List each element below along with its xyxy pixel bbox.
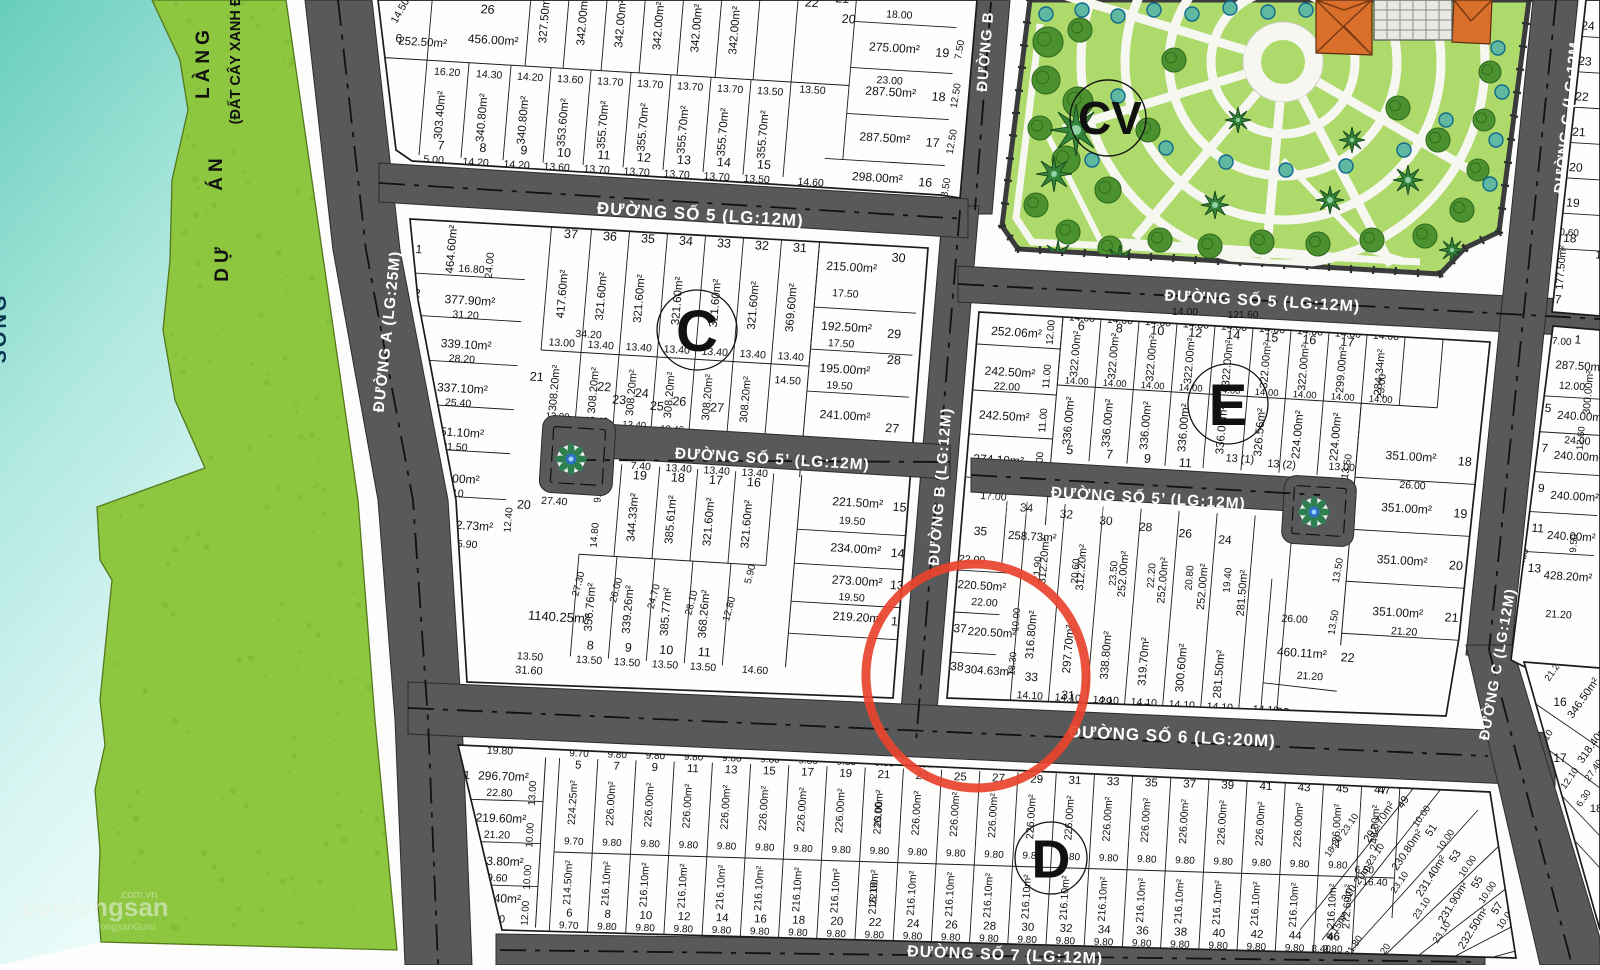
svg-text:33: 33	[1024, 670, 1039, 685]
svg-text:42: 42	[1250, 929, 1264, 941]
svg-text:9.80: 9.80	[864, 930, 885, 942]
svg-text:19.50: 19.50	[826, 379, 853, 393]
svg-text:9.80: 9.80	[1328, 860, 1349, 872]
svg-text:38: 38	[950, 659, 965, 674]
svg-text:by Prop: by Prop	[1049, 523, 1095, 540]
svg-text:28.20: 28.20	[448, 353, 475, 367]
svg-text:9.80: 9.80	[716, 841, 737, 853]
svg-text:14: 14	[890, 546, 905, 561]
svg-text:28: 28	[886, 353, 901, 368]
svg-text:44: 44	[1288, 930, 1302, 942]
svg-text:43: 43	[1297, 782, 1311, 794]
svg-text:9.80: 9.80	[1213, 856, 1234, 868]
svg-text:13: 13	[1527, 561, 1542, 576]
svg-text:31.20: 31.20	[452, 309, 479, 323]
svg-text:19.40: 19.40	[1222, 567, 1235, 593]
svg-text:batdongsanGuru: batdongsanGuru	[81, 922, 156, 933]
svg-text:26.00: 26.00	[1399, 479, 1426, 493]
svg-text:12.40: 12.40	[502, 507, 515, 533]
svg-text:10: 10	[639, 910, 653, 922]
svg-text:30: 30	[891, 250, 906, 265]
svg-text:35: 35	[973, 524, 988, 539]
svg-text:14.00: 14.00	[1330, 391, 1355, 403]
svg-text:9.80: 9.80	[635, 923, 656, 935]
svg-text:14.30: 14.30	[475, 68, 502, 82]
svg-text:16.20: 16.20	[433, 66, 460, 80]
svg-text:9.80: 9.80	[755, 842, 776, 854]
svg-text:7.40: 7.40	[630, 460, 652, 473]
svg-text:C: C	[676, 299, 718, 364]
svg-text:31.60: 31.60	[515, 664, 544, 678]
svg-text:D: D	[1032, 829, 1071, 889]
svg-text:10.00: 10.00	[522, 864, 535, 890]
svg-text:29: 29	[887, 327, 902, 342]
svg-text:8: 8	[586, 638, 594, 652]
svg-text:21: 21	[529, 369, 544, 384]
svg-text:9.80: 9.80	[711, 925, 732, 937]
svg-text:22.00: 22.00	[971, 596, 998, 610]
svg-text:9.80: 9.80	[869, 846, 890, 858]
svg-text:17.50: 17.50	[832, 287, 859, 301]
svg-text:9.80: 9.80	[678, 840, 699, 852]
svg-text:9.80: 9.80	[788, 927, 809, 939]
svg-text:21: 21	[1444, 610, 1459, 625]
svg-text:22: 22	[597, 380, 612, 395]
svg-text:13 (1): 13 (1)	[1225, 452, 1255, 466]
svg-text:11: 11	[1531, 521, 1545, 536]
svg-text:13.50: 13.50	[651, 658, 678, 672]
svg-text:30: 30	[1021, 922, 1035, 934]
svg-text:13.60: 13.60	[556, 73, 583, 87]
svg-text:25: 25	[649, 399, 664, 414]
svg-text:16: 16	[1553, 695, 1567, 709]
svg-text:9.80: 9.80	[750, 926, 771, 938]
svg-text:22: 22	[804, 0, 819, 10]
svg-text:27.40: 27.40	[541, 495, 568, 509]
svg-text:34: 34	[1097, 924, 1111, 936]
svg-text:13.40: 13.40	[777, 350, 804, 364]
svg-text:15: 15	[756, 157, 771, 172]
svg-text:18: 18	[1590, 803, 1600, 815]
svg-text:22: 22	[1340, 650, 1355, 665]
svg-text:13.50: 13.50	[756, 85, 783, 99]
svg-text:9.80: 9.80	[1137, 854, 1158, 866]
svg-text:9.80: 9.80	[826, 929, 847, 941]
svg-text:24: 24	[634, 386, 649, 401]
svg-text:121.60: 121.60	[1228, 310, 1259, 321]
svg-text:40: 40	[1212, 928, 1226, 940]
svg-text:13.70: 13.70	[596, 75, 623, 89]
svg-text:9.80: 9.80	[597, 921, 618, 933]
svg-text:18: 18	[1457, 454, 1472, 469]
svg-text:7: 7	[613, 761, 620, 773]
svg-text:13.70: 13.70	[636, 78, 663, 92]
svg-text:20: 20	[516, 497, 531, 512]
svg-text:E: E	[1209, 373, 1248, 438]
svg-text:5: 5	[1066, 443, 1074, 457]
svg-text:28: 28	[1138, 520, 1153, 535]
svg-text:9.80: 9.80	[941, 932, 962, 944]
svg-text:14.50: 14.50	[774, 374, 801, 388]
svg-text:38: 38	[1174, 926, 1188, 938]
svg-text:14.00: 14.00	[1140, 380, 1165, 392]
svg-text:39: 39	[1221, 780, 1235, 792]
svg-text:11.00: 11.00	[1041, 363, 1054, 388]
svg-text:13.50: 13.50	[689, 661, 716, 675]
svg-text:26: 26	[1178, 526, 1193, 541]
svg-text:20.80: 20.80	[1184, 565, 1197, 591]
svg-text:13.50: 13.50	[516, 650, 543, 664]
svg-text:10.00: 10.00	[524, 822, 537, 848]
svg-text:21: 21	[835, 0, 850, 6]
svg-text:15: 15	[892, 500, 907, 515]
svg-text:16.80: 16.80	[458, 263, 485, 277]
svg-text:14.00: 14.00	[1064, 375, 1089, 387]
svg-text:13.50: 13.50	[575, 654, 602, 668]
svg-text:21: 21	[877, 769, 891, 781]
svg-text:5: 5	[575, 760, 582, 772]
svg-text:13.00: 13.00	[527, 780, 540, 806]
svg-text:9.80: 9.80	[1098, 853, 1119, 865]
svg-text:9.80: 9.80	[1251, 858, 1272, 870]
svg-text:DỰ: DỰ	[212, 242, 233, 281]
svg-text:13.40: 13.40	[665, 462, 692, 476]
svg-text:21.20: 21.20	[483, 829, 510, 842]
svg-text:36: 36	[1136, 925, 1150, 937]
svg-text:14.00: 14.00	[1102, 378, 1127, 390]
svg-text:11.00: 11.00	[1037, 407, 1050, 432]
svg-text:9.80: 9.80	[979, 933, 1000, 945]
svg-text:19: 19	[935, 45, 950, 60]
svg-text:18: 18	[931, 89, 946, 104]
svg-text:9.50: 9.50	[1568, 534, 1581, 553]
svg-text:13.40: 13.40	[741, 467, 768, 481]
svg-text:24: 24	[906, 918, 920, 930]
svg-text:(ĐẤT CÂY XANH Đ: (ĐẤT CÂY XANH Đ	[226, 0, 244, 124]
svg-text:296.70m²: 296.70m²	[478, 769, 529, 785]
svg-text:13.50: 13.50	[613, 656, 640, 670]
svg-text:11: 11	[597, 148, 611, 163]
svg-text:32: 32	[1059, 923, 1073, 935]
svg-text:9: 9	[624, 641, 632, 655]
svg-text:9.80: 9.80	[673, 924, 694, 936]
svg-text:28: 28	[983, 920, 997, 932]
svg-text:20: 20	[1448, 558, 1463, 573]
svg-text:CV: CV	[1078, 92, 1142, 144]
svg-text:37: 37	[1183, 778, 1197, 790]
svg-text:19: 19	[1453, 506, 1468, 521]
svg-text:9.80: 9.80	[902, 931, 923, 943]
svg-text:33: 33	[1106, 776, 1120, 788]
svg-text:120: 120	[1595, 249, 1600, 262]
svg-text:9: 9	[651, 762, 658, 774]
svg-text:19: 19	[839, 768, 853, 780]
svg-text:17: 17	[1553, 751, 1567, 765]
svg-text:17: 17	[925, 135, 940, 150]
svg-text:23.00: 23.00	[1376, 373, 1389, 399]
svg-text:12.00: 12.00	[1558, 380, 1585, 394]
svg-text:27: 27	[885, 421, 900, 436]
svg-text:13.40: 13.40	[703, 464, 730, 478]
svg-text:9.80: 9.80	[1289, 859, 1310, 871]
svg-text:26: 26	[672, 394, 687, 409]
svg-text:13 (2): 13 (2)	[1267, 458, 1297, 472]
svg-text:13: 13	[676, 153, 691, 168]
svg-text:11: 11	[1178, 456, 1192, 471]
svg-text:12.60: 12.60	[1575, 426, 1588, 450]
svg-text:6: 6	[566, 908, 573, 920]
svg-text:10: 10	[556, 145, 571, 160]
svg-text:7.00: 7.00	[1551, 336, 1572, 348]
svg-text:16: 16	[918, 175, 933, 190]
svg-text:19: 19	[1566, 195, 1581, 210]
svg-text:460.11m²: 460.11m²	[1276, 644, 1327, 661]
svg-text:9.80: 9.80	[946, 848, 967, 860]
svg-text:9.70: 9.70	[559, 920, 580, 932]
svg-text:13.70: 13.70	[676, 80, 703, 94]
svg-text:13.00: 13.00	[548, 336, 575, 350]
svg-text:10: 10	[659, 643, 674, 658]
svg-text:11: 11	[697, 645, 711, 660]
svg-text:9.80: 9.80	[640, 839, 661, 851]
svg-text:27: 27	[710, 400, 725, 415]
svg-text:219.60m²: 219.60m²	[475, 811, 526, 827]
svg-text:22.00: 22.00	[868, 879, 881, 905]
svg-text:9.70: 9.70	[564, 836, 585, 848]
svg-text:14.20: 14.20	[516, 71, 543, 85]
svg-text:24: 24	[1218, 532, 1233, 547]
svg-text:22.00: 22.00	[993, 380, 1020, 394]
svg-text:9: 9	[1143, 452, 1151, 466]
svg-text:37: 37	[953, 621, 968, 636]
svg-text:41: 41	[1259, 781, 1273, 793]
svg-text:9.80: 9.80	[831, 845, 852, 857]
svg-text:9.80: 9.80	[793, 843, 814, 855]
svg-text:17: 17	[801, 767, 815, 779]
svg-text:8: 8	[604, 909, 611, 921]
svg-text:7: 7	[437, 138, 445, 152]
svg-text:22.80: 22.80	[486, 787, 513, 800]
svg-text:12: 12	[677, 911, 691, 923]
svg-text:13.40: 13.40	[739, 348, 766, 362]
svg-text:11: 11	[687, 763, 700, 775]
svg-text:16: 16	[754, 913, 768, 925]
svg-text:26: 26	[480, 2, 495, 17]
svg-text:20: 20	[830, 916, 844, 928]
svg-text:19.50: 19.50	[838, 515, 865, 529]
svg-text:31: 31	[1068, 775, 1082, 787]
svg-text:23.00: 23.00	[876, 74, 903, 88]
svg-text:14.00: 14.00	[1172, 306, 1198, 318]
svg-text:13.50: 13.50	[799, 84, 826, 98]
svg-text:13: 13	[724, 764, 738, 776]
svg-text:14: 14	[716, 155, 731, 170]
svg-text:25.40: 25.40	[444, 397, 471, 411]
svg-text:26.00: 26.00	[1281, 613, 1308, 627]
svg-text:13.40: 13.40	[625, 341, 652, 355]
svg-text:17.50: 17.50	[827, 337, 854, 351]
svg-text:23.00: 23.00	[873, 801, 886, 827]
svg-text:SÔNG: SÔNG	[0, 293, 11, 364]
svg-text:12: 12	[636, 150, 651, 165]
svg-text:13.70: 13.70	[716, 83, 743, 97]
svg-text:9: 9	[520, 143, 528, 157]
svg-text:14: 14	[715, 912, 729, 924]
svg-text:14.00: 14.00	[1292, 389, 1317, 401]
svg-text:21.20: 21.20	[1296, 670, 1323, 684]
svg-text:23: 23	[612, 393, 627, 408]
svg-text:18: 18	[792, 915, 806, 927]
svg-text:12.00: 12.00	[520, 900, 533, 926]
svg-text:14.80: 14.80	[589, 522, 602, 548]
svg-text:14.60: 14.60	[741, 664, 768, 678]
svg-text:LÀNG: LÀNG	[192, 25, 214, 99]
svg-text:9.80: 9.80	[907, 847, 928, 859]
svg-text:26: 26	[945, 919, 959, 931]
svg-text:19.50: 19.50	[838, 591, 865, 605]
svg-text:ÁN: ÁN	[205, 153, 227, 190]
svg-text:13.40: 13.40	[587, 339, 614, 353]
svg-text:18.00: 18.00	[886, 8, 913, 22]
svg-text:9.80: 9.80	[602, 837, 623, 849]
svg-text:.com.vn: .com.vn	[119, 889, 158, 901]
svg-text:35: 35	[1145, 777, 1159, 789]
svg-text:21.20: 21.20	[1390, 625, 1417, 639]
svg-text:31: 31	[792, 241, 807, 256]
svg-text:12.00: 12.00	[1045, 319, 1058, 345]
svg-text:7: 7	[1106, 447, 1114, 461]
svg-text:22: 22	[868, 917, 882, 929]
svg-text:8: 8	[479, 141, 487, 155]
svg-text:9.80: 9.80	[1175, 855, 1196, 867]
svg-text:15: 15	[763, 765, 777, 777]
svg-text:9.80: 9.80	[984, 849, 1005, 861]
svg-text:24.00: 24.00	[483, 252, 497, 279]
svg-text:21.20: 21.20	[1545, 608, 1572, 622]
